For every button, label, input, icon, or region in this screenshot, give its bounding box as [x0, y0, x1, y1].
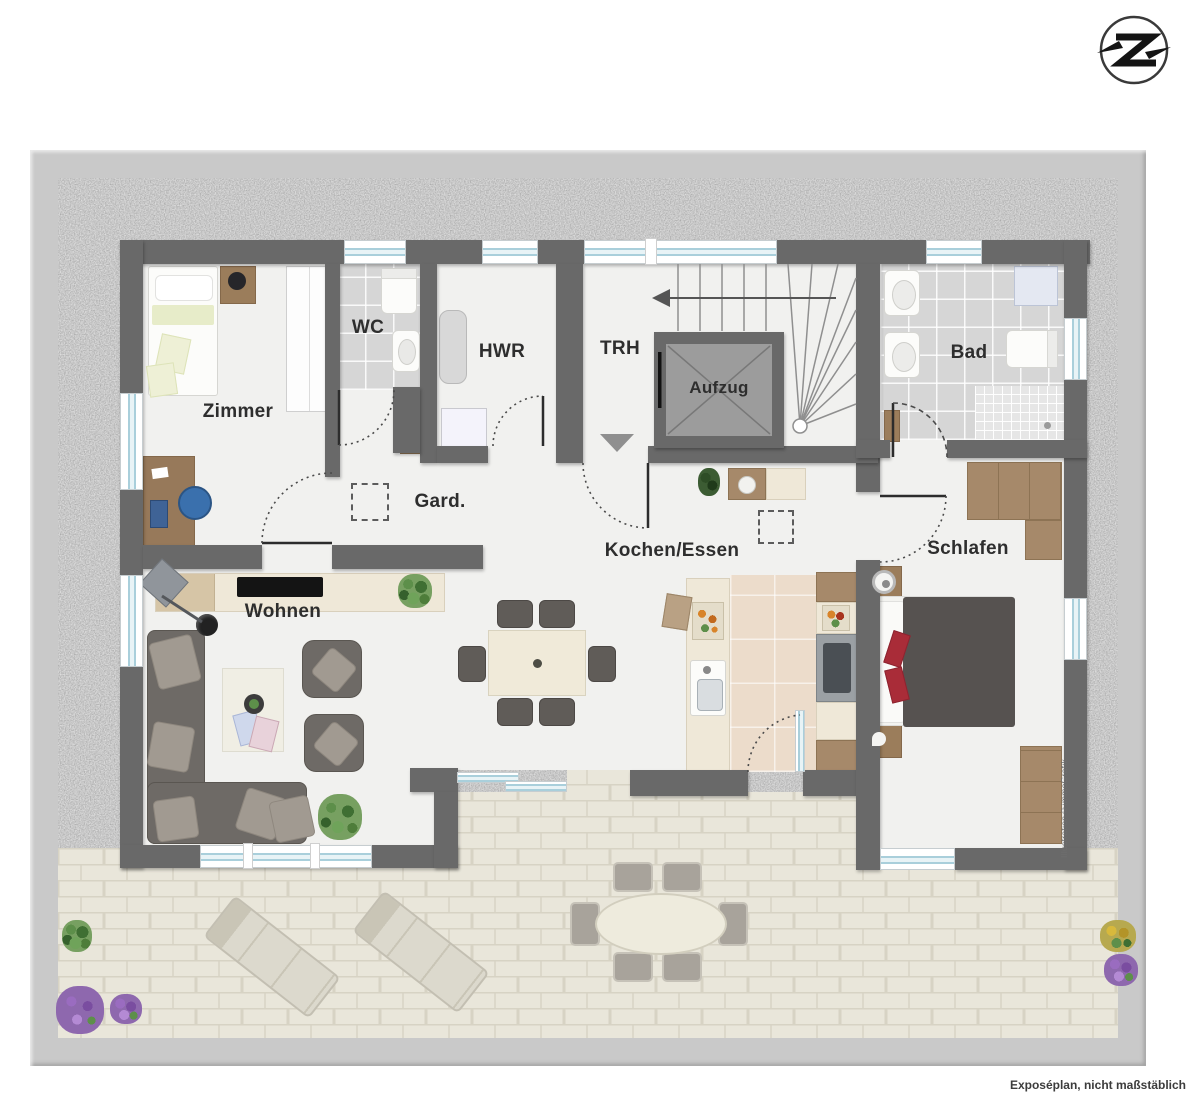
dining-table [488, 630, 586, 696]
bowl [738, 476, 756, 494]
sideboard-plant [398, 574, 432, 608]
plan-disclaimer: Exposéplan, nicht maßstäblich [1010, 1078, 1186, 1092]
flower-pot [1104, 954, 1138, 986]
shower-drain [1044, 422, 1051, 429]
wall-doorright-stub [803, 770, 860, 796]
wall-wc-right [420, 264, 437, 463]
window-left-zimmer [120, 393, 143, 490]
terrace-chair [613, 862, 653, 892]
window-top-wc [344, 240, 406, 264]
window-mullion [310, 843, 320, 869]
wall-trh-left [556, 264, 583, 463]
wall-kitchen-bottom [630, 770, 748, 796]
tv [237, 577, 323, 597]
wall-zimmer-right [325, 264, 340, 477]
entry-sideboard-2 [766, 468, 806, 500]
flower-pot [1058, 996, 1086, 1022]
bad-sink [884, 270, 920, 316]
sink-faucet [703, 666, 711, 674]
wohnen-plant [318, 794, 362, 840]
terrace-glass-door-leaf [795, 710, 805, 772]
dining-chair [458, 646, 486, 682]
dining-chair [588, 646, 616, 682]
room-label-hwr: HWR [479, 341, 525, 363]
terrace-chair [662, 862, 702, 892]
shaft-marking [758, 510, 794, 544]
entry-plant [698, 468, 720, 496]
toilet-tank [1047, 331, 1057, 367]
desk-laptop [150, 500, 168, 528]
toilet-tank [382, 269, 416, 279]
zimmer-blanket-pattern [146, 362, 178, 398]
wall-bad-bottom-a [856, 440, 890, 458]
wall-hwr-bottom [437, 446, 488, 463]
sofa-cushion [152, 795, 199, 842]
window-top-hwr [482, 240, 538, 264]
terrace-chair [662, 952, 702, 982]
wc-sink [392, 330, 420, 372]
window-mullion [645, 238, 657, 265]
room-label-trh: TRH [600, 338, 640, 360]
bad-sink [884, 332, 920, 378]
room-label-wc: WC [352, 317, 384, 339]
flower-pot [56, 986, 104, 1034]
sink-basin [398, 339, 416, 365]
sink-bowl [697, 679, 723, 711]
wall-wohnen-right [434, 792, 458, 868]
wall-slide-stub [410, 768, 458, 792]
kitchen-cabinet-cream2 [816, 702, 858, 740]
room-label-aufzug: Aufzug [689, 378, 748, 398]
terrace-chair [613, 952, 653, 982]
bed-blanket-strip [152, 305, 214, 325]
bed-duvet [903, 597, 1015, 727]
armchair [302, 640, 362, 698]
window-right-bad [1064, 318, 1087, 380]
nightstand-deco [872, 732, 886, 746]
shaft-marking [351, 483, 389, 521]
kitchen-cabinet-pantry [816, 740, 858, 772]
room-label-gard: Gard. [414, 491, 465, 513]
wall-bad-bottom-b [947, 440, 1087, 458]
sofa-cushion [146, 721, 195, 774]
illustrator-watermark: Illustration©immoGrafik [1059, 740, 1069, 858]
room-label-zimmer: Zimmer [203, 401, 273, 423]
shower-glass-panel [1014, 266, 1058, 306]
room-label-kochen: Kochen/Essen [605, 540, 740, 562]
schlafen-wardrobe-corner-a [967, 462, 1062, 520]
room-label-wohnen: Wohnen [245, 601, 321, 623]
kitchen-sink [690, 660, 726, 716]
side-table [244, 694, 264, 714]
entry-sideboard [728, 468, 766, 500]
window-bottom-wohnen [200, 845, 372, 868]
sofa-cushion [268, 794, 316, 843]
wall-left [120, 240, 143, 868]
window-bottom-schlafen [880, 848, 955, 870]
room-label-bad: Bad [951, 342, 988, 364]
bed-pillow [155, 275, 213, 301]
flower-pot [1100, 920, 1136, 952]
flower-pot [1092, 986, 1140, 1028]
window-mullion [243, 843, 253, 869]
oven-front [823, 643, 851, 693]
schlafen-wardrobe-corner-b [1025, 520, 1062, 560]
kitchen-oven [816, 634, 858, 702]
zimmer-office-chair [178, 486, 212, 520]
window-top-bad [926, 240, 982, 264]
wall-wohnen-top-b [332, 545, 483, 569]
compass-logo-icon [1092, 8, 1176, 92]
flower-pot [60, 954, 90, 986]
dining-chair [539, 698, 575, 726]
arc-lamp-base [196, 614, 218, 636]
table-center-dot [533, 659, 542, 668]
flower-pot [110, 994, 142, 1024]
armchair-cushion [310, 646, 358, 694]
room-label-schlafen: Schlafen [927, 538, 1009, 560]
lamp-center [882, 580, 890, 588]
wall-schlafen-left-lower [856, 560, 880, 870]
hwr-appliance [441, 408, 487, 450]
wardrobe-divider [309, 267, 310, 411]
sink-basin [892, 280, 916, 310]
island-veggie-crate [692, 602, 724, 640]
kitchen-cabinet-top [816, 572, 858, 602]
shower-tiles [975, 386, 1064, 440]
window-left-wohnen [120, 575, 143, 667]
window-top-trh [584, 240, 777, 264]
armchair [304, 714, 364, 772]
nightstand-lamp [872, 570, 896, 594]
terrace-oval-table [595, 893, 727, 955]
wall-wc-pier [393, 387, 420, 453]
dining-chair [497, 698, 533, 726]
terrace-sliding-door-b [505, 781, 567, 792]
schlafen-wardrobe-bottom [1020, 746, 1062, 844]
floorplan-page: Zimmer WC HWR TRH Aufzug Bad Gard. Koche… [0, 0, 1200, 1106]
hwr-washer [439, 310, 467, 384]
cabinet-veggie-crate [822, 605, 850, 631]
armchair-cushion [312, 720, 360, 768]
zimmer-lamp [228, 272, 246, 290]
wc-toilet [381, 268, 417, 314]
flower-pot [62, 920, 92, 952]
sink-basin [892, 342, 916, 372]
dining-chair [539, 600, 575, 628]
wall-entry-right [648, 446, 878, 463]
window-right-schlafen [1064, 598, 1087, 660]
bad-toilet [1006, 330, 1058, 368]
cutting-board [662, 593, 693, 631]
dining-chair [497, 600, 533, 628]
bad-shelf [884, 410, 900, 442]
side-table-plant [249, 699, 259, 709]
